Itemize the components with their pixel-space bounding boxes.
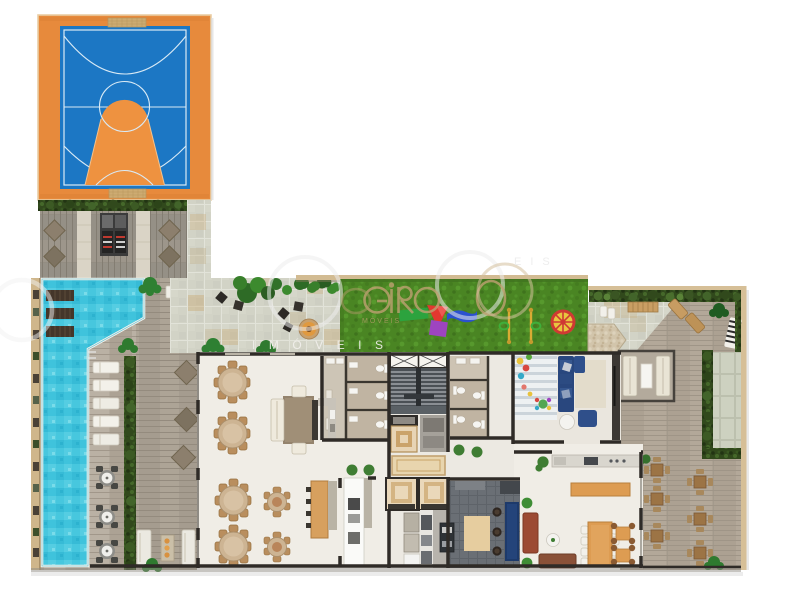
svg-text:IMÓVEIS: IMÓVEIS — [252, 337, 397, 352]
svg-text:EIS: EIS — [514, 256, 559, 268]
svg-text:MÓVEIS: MÓVEIS — [362, 316, 401, 325]
